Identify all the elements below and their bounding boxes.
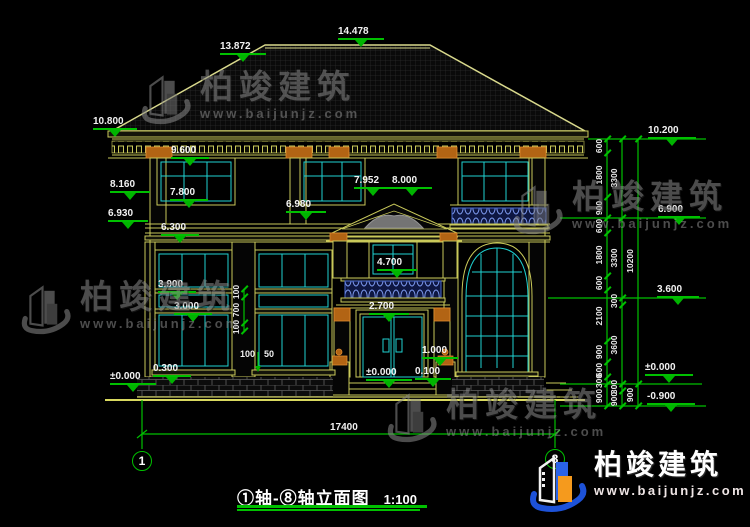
elevation-mark: 2.700: [369, 301, 409, 322]
cad-elevation-drawing: 13.87214.47810.8008.1606.930±0.0009.6007…: [0, 0, 750, 527]
elevation-mark: 0.100: [415, 366, 451, 387]
elevation-mark: 10.200: [648, 125, 696, 146]
elevation-mark: 3.000: [174, 301, 212, 322]
elevation-mark: 4.700: [377, 257, 417, 278]
elevation-mark: 6.930: [108, 208, 148, 229]
brand-logo-icon: [528, 450, 588, 516]
elevation-mark: 14.478: [338, 26, 384, 47]
dim-chain-value: 100: [231, 285, 241, 299]
dim-chain-value: 900: [594, 201, 604, 215]
dim-chain-value: 600: [594, 139, 604, 153]
title-underline-2: [237, 509, 420, 511]
dim-chain-value: 300: [594, 374, 604, 388]
dim-chain-value: 3600: [609, 336, 619, 355]
title-underline: [237, 505, 427, 508]
elevation-mark: 7.800: [170, 187, 208, 208]
building-elevation-svg: [0, 0, 750, 527]
second-floor-windows: [157, 158, 532, 205]
elevation-mark: ±0.000: [366, 367, 412, 388]
hip-roof: [112, 45, 585, 131]
elevation-mark: 8.000: [392, 175, 432, 196]
elevation-mark: 1.000: [422, 345, 458, 366]
elevation-mark: ±0.000: [645, 362, 693, 383]
dim-chain-value: 600: [594, 219, 604, 233]
dim-chain-value: 300: [609, 294, 619, 308]
elevation-mark: 13.872: [220, 41, 266, 62]
dim-chain-value: 600: [594, 276, 604, 290]
elevation-mark: 6.980: [286, 199, 326, 220]
dim-chain-value: 3300: [609, 169, 619, 188]
elevation-mark: 3.600: [657, 284, 699, 305]
right-balcony: [450, 205, 548, 229]
elevation-mark: -0.900: [647, 391, 695, 412]
elevation-mark: 6.300: [161, 222, 199, 243]
arched-window: [456, 243, 538, 376]
overall-width-dim: 17400: [330, 422, 358, 433]
brand-name: 柏竣建筑: [594, 450, 746, 480]
dim-chain-value: 900: [594, 345, 604, 359]
dim-chain-value: 1800: [594, 166, 604, 185]
free-dim: 100: [240, 349, 255, 359]
elevation-mark: 3.900: [158, 279, 196, 300]
brand-logo: 柏竣建筑 www.baijunjz.com: [528, 450, 746, 516]
brand-url: www.baijunjz.com: [594, 483, 746, 498]
dim-chain-value: 100: [231, 320, 241, 334]
elevation-mark: 8.160: [110, 179, 150, 200]
elevation-mark: 10.800: [93, 116, 137, 137]
elevation-mark: 6.900: [658, 204, 700, 225]
dim-chain-value: 1800: [594, 246, 604, 265]
dim-chain-value: 900: [625, 388, 635, 402]
elevation-mark: 7.952: [354, 175, 392, 196]
dim-chain-value: 2100: [594, 307, 604, 326]
dim-chain-value: 10200: [625, 249, 635, 273]
dim-chain-value: 700: [231, 303, 241, 317]
dim-chain-value: 900: [594, 389, 604, 403]
dim-chain-value: 900: [609, 392, 619, 406]
elevation-mark: ±0.000: [110, 371, 156, 392]
free-dim: 50: [264, 349, 274, 359]
elevation-mark: 0.300: [153, 363, 191, 384]
elevation-mark: 9.600: [171, 145, 209, 166]
axis-bubble: 1: [132, 451, 152, 471]
dim-chain-value: 3300: [609, 249, 619, 268]
